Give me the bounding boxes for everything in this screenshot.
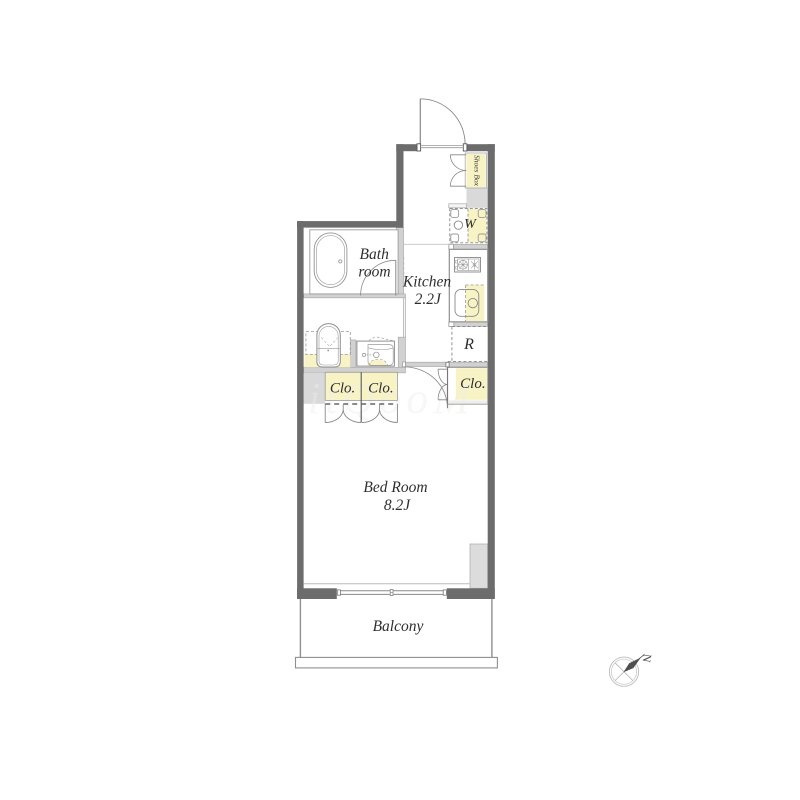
svg-text:Clo.: Clo. [460, 376, 485, 392]
svg-text:Balcony: Balcony [373, 618, 424, 635]
svg-text:Shoes Box: Shoes Box [473, 155, 482, 187]
svg-text:Bath: Bath [360, 246, 390, 263]
svg-text:Clo.: Clo. [330, 380, 355, 396]
svg-text:Kitchen: Kitchen [402, 274, 451, 291]
svg-text:8.2J: 8.2J [384, 497, 411, 514]
svg-text:R: R [463, 336, 474, 353]
svg-text:2.2J: 2.2J [415, 291, 442, 308]
svg-text:room: room [358, 264, 390, 281]
svg-text:W: W [464, 217, 477, 232]
svg-text:Bed Room: Bed Room [363, 479, 427, 496]
svg-text:N: N [640, 653, 653, 664]
svg-text:Clo.: Clo. [368, 380, 393, 396]
